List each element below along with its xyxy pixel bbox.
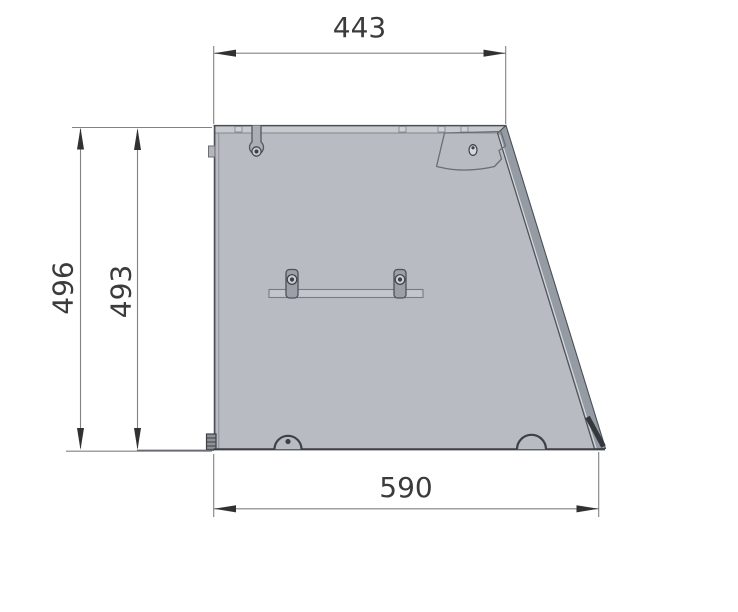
bottom-hinge <box>207 434 217 450</box>
flange-notch-3 <box>438 127 445 133</box>
arrow-down-icon <box>134 428 141 450</box>
technical-drawing: 443 496 493 590 <box>0 0 738 612</box>
dim-label-top-width: 443 <box>333 11 386 44</box>
dimension-left-heights: 496 493 <box>47 128 215 452</box>
panel <box>207 125 606 450</box>
arrow-up-icon <box>134 128 141 150</box>
flange-notch-2 <box>399 127 406 133</box>
clip-screw-left-center <box>290 277 294 281</box>
arrow-right-icon <box>577 505 599 512</box>
arrow-up-icon <box>77 128 84 150</box>
dim-label-left-outer: 496 <box>47 261 80 314</box>
dim-label-left-inner: 493 <box>105 265 138 318</box>
drawing-canvas: 443 496 493 590 <box>0 0 738 612</box>
flange-notch-4 <box>461 127 468 133</box>
foot-cutout-left-hole <box>285 439 290 444</box>
left-edge-bracket <box>209 146 216 157</box>
rail-clip-right <box>394 270 406 299</box>
rail-clip-left <box>286 270 298 299</box>
dimension-left-outer: 496 <box>47 128 85 450</box>
arrow-left-icon <box>214 505 236 512</box>
arrow-right-icon <box>484 50 506 57</box>
dim-label-bottom-width: 590 <box>379 471 432 504</box>
arrow-left-icon <box>214 50 236 57</box>
flange-notch-1 <box>235 127 242 133</box>
clip-screw-right-center <box>398 277 402 281</box>
keyhole-screw-center <box>255 150 259 154</box>
arrow-down-icon <box>77 428 84 450</box>
dimension-bottom-width: 590 <box>214 452 599 517</box>
keyhole-hanger <box>250 126 264 157</box>
dimension-left-inner: 493 <box>105 128 142 450</box>
corner-plate-hole-dot <box>471 146 474 149</box>
dimension-top-width: 443 <box>214 11 506 124</box>
